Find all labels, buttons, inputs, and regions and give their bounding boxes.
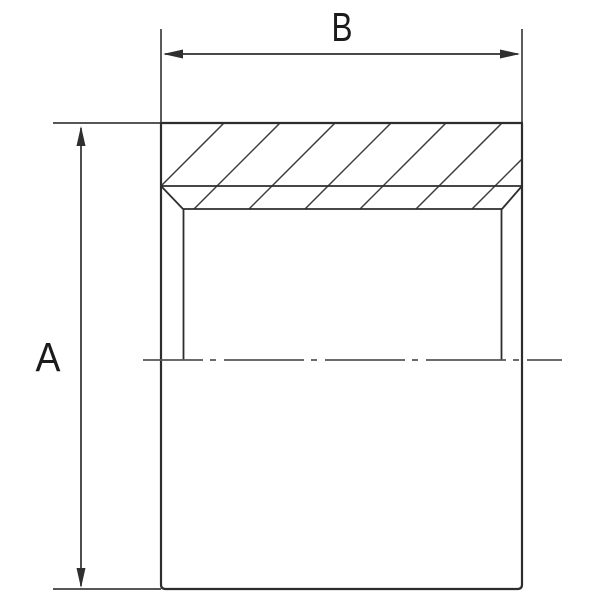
drawing-area: B A bbox=[0, 0, 600, 600]
arrowhead-a-up-icon bbox=[77, 126, 86, 146]
right-chamfer-line bbox=[502, 186, 522, 209]
arrowhead-b-left-icon bbox=[163, 50, 183, 59]
dimension-lines bbox=[81, 54, 518, 586]
left-chamfer-line bbox=[161, 186, 183, 209]
hatch-line bbox=[416, 123, 502, 209]
part-outer-profile bbox=[161, 123, 522, 589]
hatch-line bbox=[161, 123, 224, 186]
section-inner-lines bbox=[161, 186, 522, 360]
technical-drawing-canvas: B A bbox=[0, 0, 600, 600]
hatch-line bbox=[360, 123, 446, 209]
part-outline bbox=[161, 123, 522, 589]
section-hatching bbox=[161, 123, 522, 209]
hatch-line bbox=[249, 123, 335, 209]
dimension-arrowheads bbox=[77, 50, 521, 589]
extension-lines bbox=[53, 29, 522, 589]
arrowhead-a-down-icon bbox=[77, 568, 86, 588]
arrowhead-b-right-icon bbox=[500, 50, 520, 59]
hatch-line bbox=[472, 159, 522, 209]
dimension-label-a: A bbox=[36, 334, 62, 380]
hatch-line bbox=[305, 123, 391, 209]
hatch-line bbox=[194, 123, 280, 209]
dimension-label-b: B bbox=[332, 4, 353, 50]
